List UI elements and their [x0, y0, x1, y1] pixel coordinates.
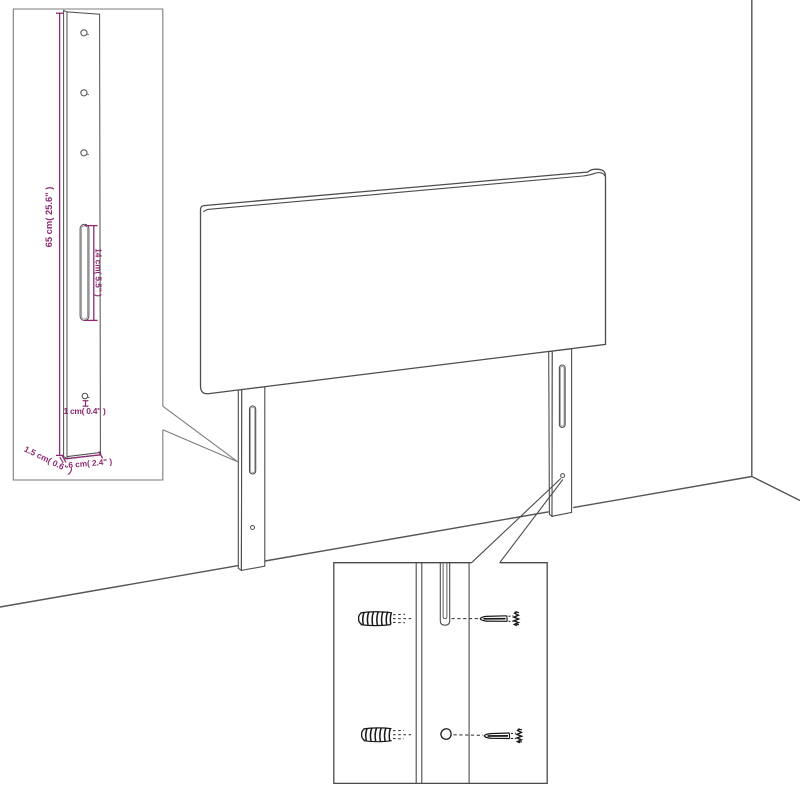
svg-text:65 cm( 25.6" ): 65 cm( 25.6" ) [43, 187, 54, 248]
svg-text:1 cm( 0.4" ): 1 cm( 0.4" ) [63, 406, 105, 416]
svg-text:14 cm( 5.5" ): 14 cm( 5.5" ) [93, 248, 102, 297]
